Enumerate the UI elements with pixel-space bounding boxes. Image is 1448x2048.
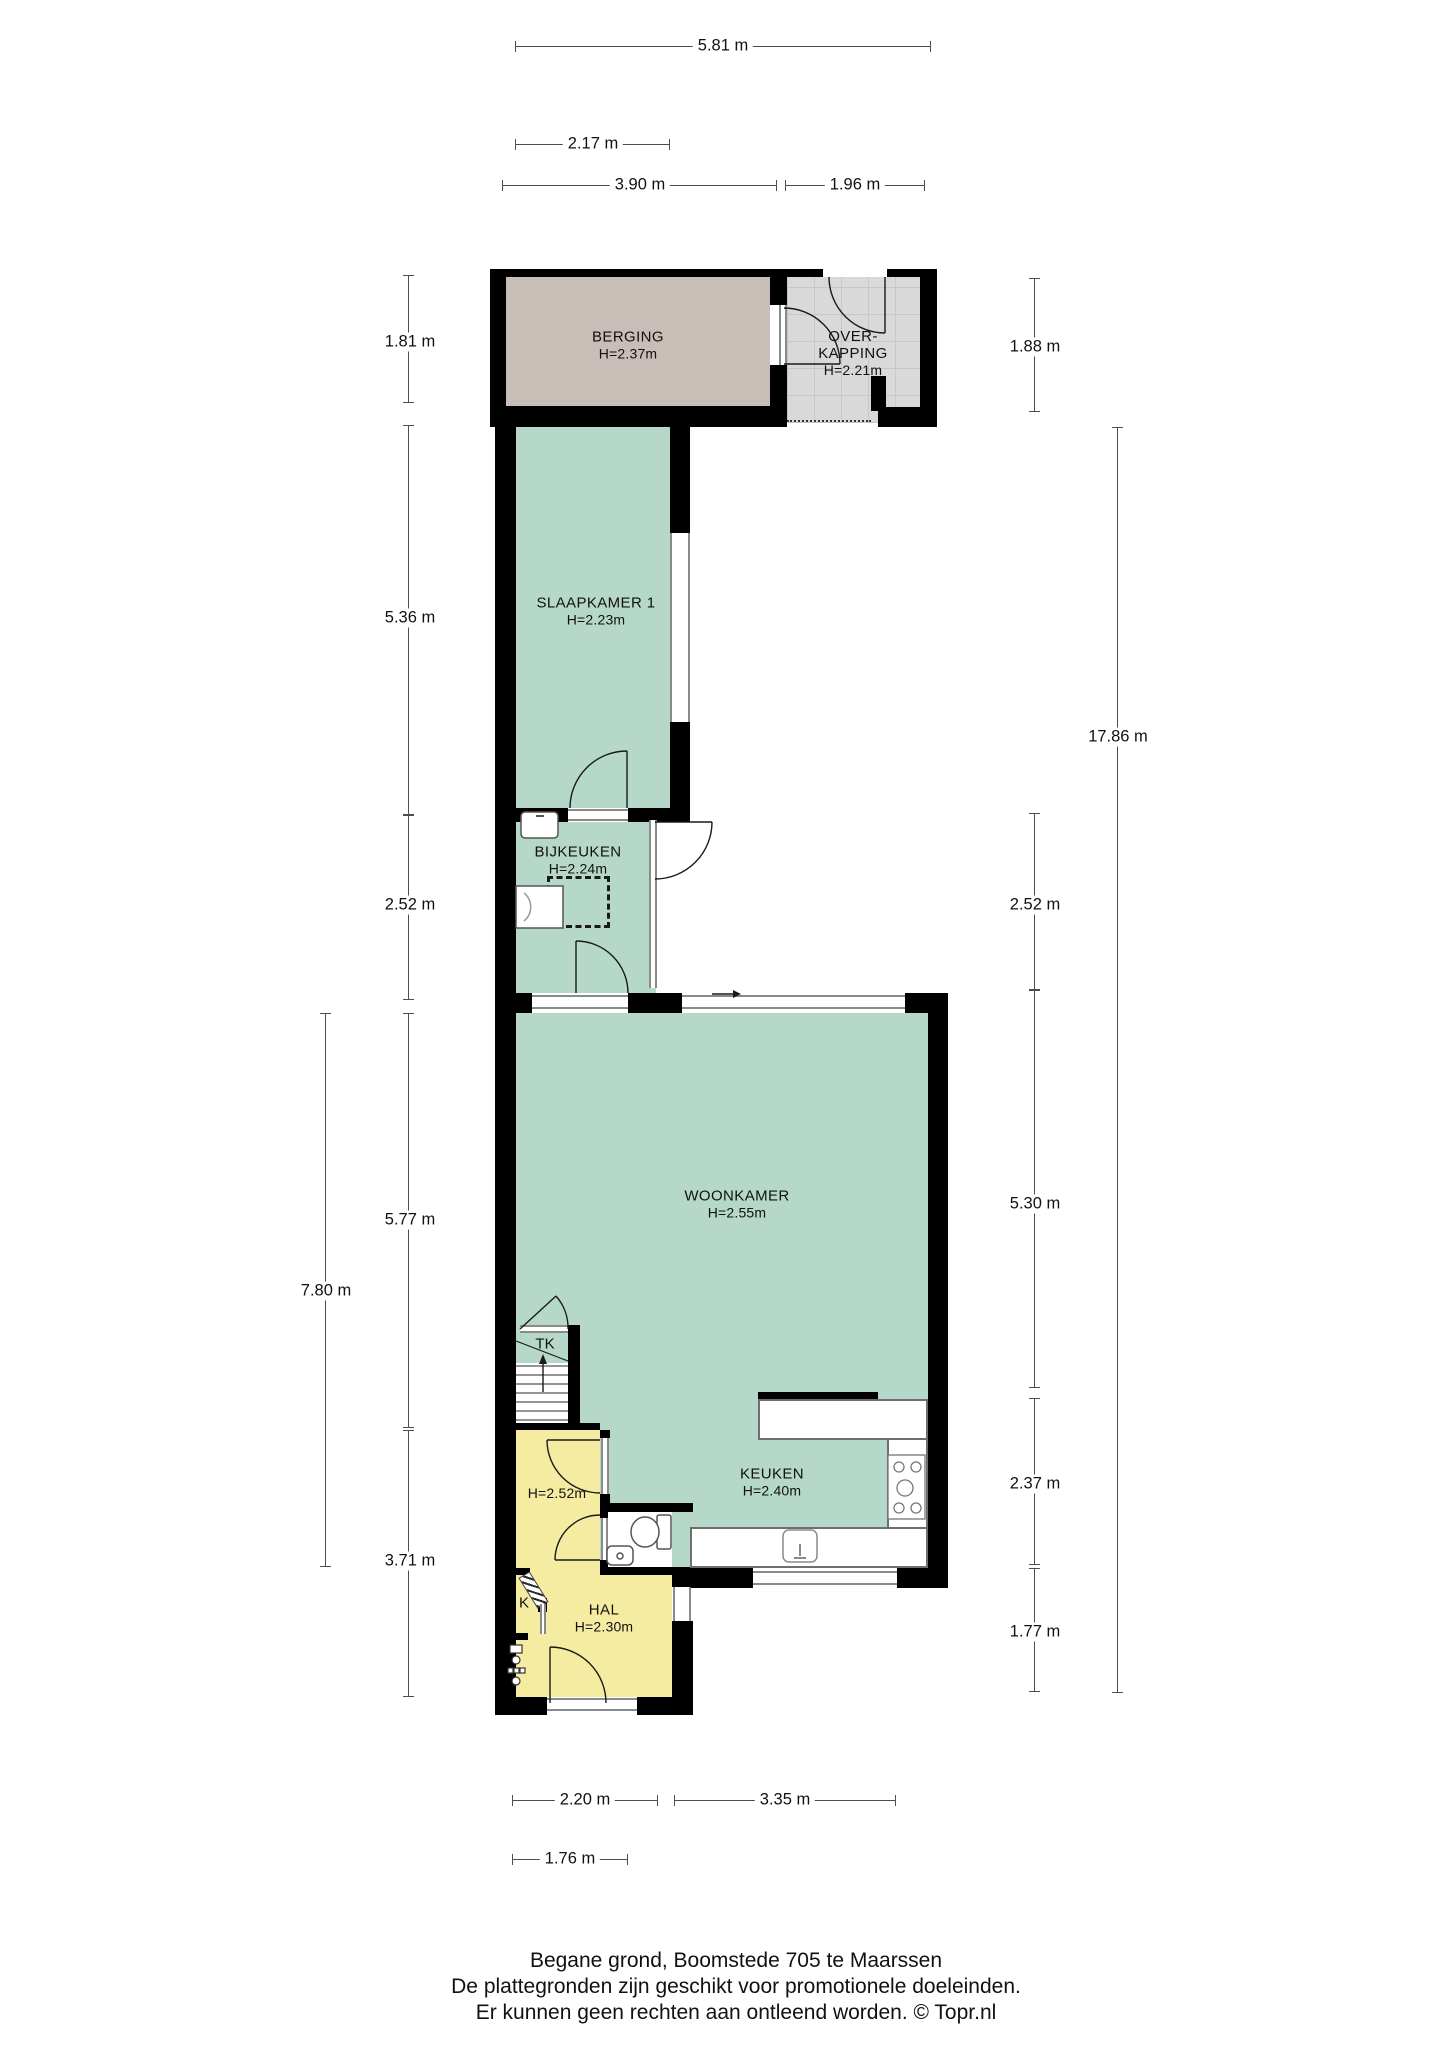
- dimension-label: 5.30 m: [1005, 1195, 1065, 1214]
- footer-line-disclaimer2: Er kunnen geen rechten aan ontleend word…: [30, 2000, 1442, 2026]
- dimension-label: 2.37 m: [1005, 1475, 1065, 1494]
- plan-symbols: [0, 0, 1448, 2048]
- dimension-label: 2.20 m: [555, 1791, 615, 1810]
- dimension-line: [1117, 427, 1118, 1693]
- door-arc: [655, 822, 712, 879]
- room-label-tk: TK: [535, 1336, 554, 1353]
- door-arc: [570, 751, 627, 808]
- dimension-label: 1.76 m: [540, 1850, 600, 1869]
- dimension-label: 2.52 m: [1005, 896, 1065, 915]
- meter-symbols: [508, 1645, 525, 1685]
- room-label-slaapkamer1: SLAAPKAMER 1 H=2.23m: [536, 595, 655, 628]
- room-label-overkapping: OVER- KAPPING H=2.21m: [818, 328, 888, 378]
- dimension-label: 2.52 m: [380, 896, 440, 915]
- dimension-label: 1.77 m: [1005, 1623, 1065, 1642]
- room-label-keuken: KEUKEN H=2.40m: [740, 1466, 804, 1499]
- dimension-label: 3.35 m: [755, 1791, 815, 1810]
- dimension-label: 1.81 m: [380, 333, 440, 352]
- door-arc: [550, 1647, 606, 1703]
- dimension-label: 5.36 m: [380, 609, 440, 628]
- room-label-k: K: [519, 1595, 529, 1612]
- dimension-label: 2.17 m: [563, 135, 623, 154]
- dimension-label: 5.77 m: [380, 1211, 440, 1230]
- room-label-woonkamer: WOONKAMER H=2.55m: [684, 1188, 789, 1221]
- toilet-bowl: [631, 1517, 659, 1547]
- dimension-line: [1034, 990, 1035, 1388]
- dimension-label: 5.81 m: [693, 37, 753, 56]
- dimension-label: 3.71 m: [380, 1552, 440, 1571]
- dimension-label: 17.86 m: [1083, 728, 1153, 747]
- door-arc: [829, 277, 885, 333]
- room-label-berging: BERGING H=2.37m: [592, 329, 664, 362]
- stairs-up-arrow: [539, 1354, 547, 1392]
- room-label-bijkeuken: BIJKEUKEN H=2.24m: [535, 844, 622, 877]
- room-label-badkamer-height: H=2.52m: [528, 1485, 587, 1501]
- dimension-label: 1.88 m: [1005, 338, 1065, 357]
- door-leaf: [520, 1296, 556, 1329]
- door-arc: [556, 1296, 568, 1329]
- room-label-hal: HAL H=2.30m: [575, 1602, 634, 1635]
- dimension-label: 3.90 m: [610, 176, 670, 195]
- footer-caption: Begane grond, Boomstede 705 te Maarssen …: [30, 1948, 1442, 2026]
- staircase: [516, 1341, 568, 1420]
- dimension-label: 1.96 m: [825, 176, 885, 195]
- footer-line-disclaimer1: De plattegronden zijn geschikt voor prom…: [30, 1974, 1442, 2000]
- door-arc: [576, 941, 628, 993]
- toilet-sink: [607, 1546, 633, 1565]
- floor-plan: BERGING H=2.37m OVER- KAPPING H=2.21m SL…: [0, 0, 1448, 2048]
- dimension-label: 7.80 m: [296, 1282, 356, 1301]
- door-arc: [555, 1515, 600, 1560]
- washing-machine: [516, 886, 563, 928]
- direction-arrow: [712, 990, 741, 998]
- footer-line-title: Begane grond, Boomstede 705 te Maarssen: [30, 1948, 1442, 1974]
